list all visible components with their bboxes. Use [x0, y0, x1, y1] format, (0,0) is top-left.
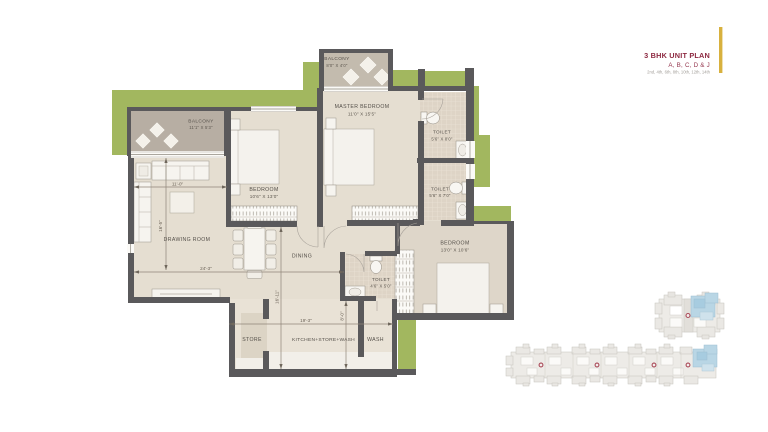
svg-text:DRAWING ROOM: DRAWING ROOM	[164, 237, 211, 243]
svg-text:8'-0": 8'-0"	[340, 311, 345, 321]
svg-text:A, B, C, D & J: A, B, C, D & J	[668, 62, 710, 69]
svg-text:TOILET: TOILET	[431, 187, 449, 192]
svg-text:BEDROOM: BEDROOM	[440, 241, 469, 247]
svg-text:16'-5": 16'-5"	[158, 220, 163, 232]
svg-text:TOILET: TOILET	[372, 277, 390, 282]
svg-text:5'6" X 8'0": 5'6" X 8'0"	[431, 137, 453, 142]
svg-text:11'0" X 15'5": 11'0" X 15'5"	[348, 112, 376, 117]
svg-text:BALCONY: BALCONY	[324, 56, 350, 62]
svg-text:10'6" X 13'0": 10'6" X 13'0"	[250, 194, 279, 199]
svg-text:DINING: DINING	[292, 254, 312, 260]
svg-text:BALCONY: BALCONY	[188, 119, 214, 125]
svg-text:16'-11": 16'-11"	[275, 290, 280, 304]
svg-text:11'1" X 5'3": 11'1" X 5'3"	[189, 125, 213, 130]
svg-text:2nd, 4th, 6th, 8th, 10th, 12th: 2nd, 4th, 6th, 8th, 10th, 12th, 14th	[647, 70, 711, 75]
svg-text:13'0" X 10'6": 13'0" X 10'6"	[441, 248, 470, 253]
svg-text:WASH: WASH	[367, 337, 384, 343]
svg-text:BEDROOM: BEDROOM	[249, 187, 278, 193]
svg-text:5'6" X 7'0": 5'6" X 7'0"	[429, 193, 451, 198]
svg-text:KITCHEN+STORE+WASH: KITCHEN+STORE+WASH	[292, 337, 355, 343]
svg-text:19'-3": 19'-3"	[300, 318, 312, 323]
svg-text:11'-0": 11'-0"	[172, 182, 184, 187]
svg-text:4'6" X 5'0": 4'6" X 5'0"	[370, 284, 392, 289]
svg-text:8'0" X 4'0": 8'0" X 4'0"	[326, 63, 348, 68]
svg-text:TOILET: TOILET	[433, 130, 451, 135]
svg-text:3 BHK UNIT PLAN: 3 BHK UNIT PLAN	[644, 51, 710, 60]
svg-text:MASTER BEDROOM: MASTER BEDROOM	[335, 104, 390, 110]
svg-text:STORE: STORE	[242, 337, 262, 343]
svg-text:24'-3": 24'-3"	[200, 266, 212, 271]
